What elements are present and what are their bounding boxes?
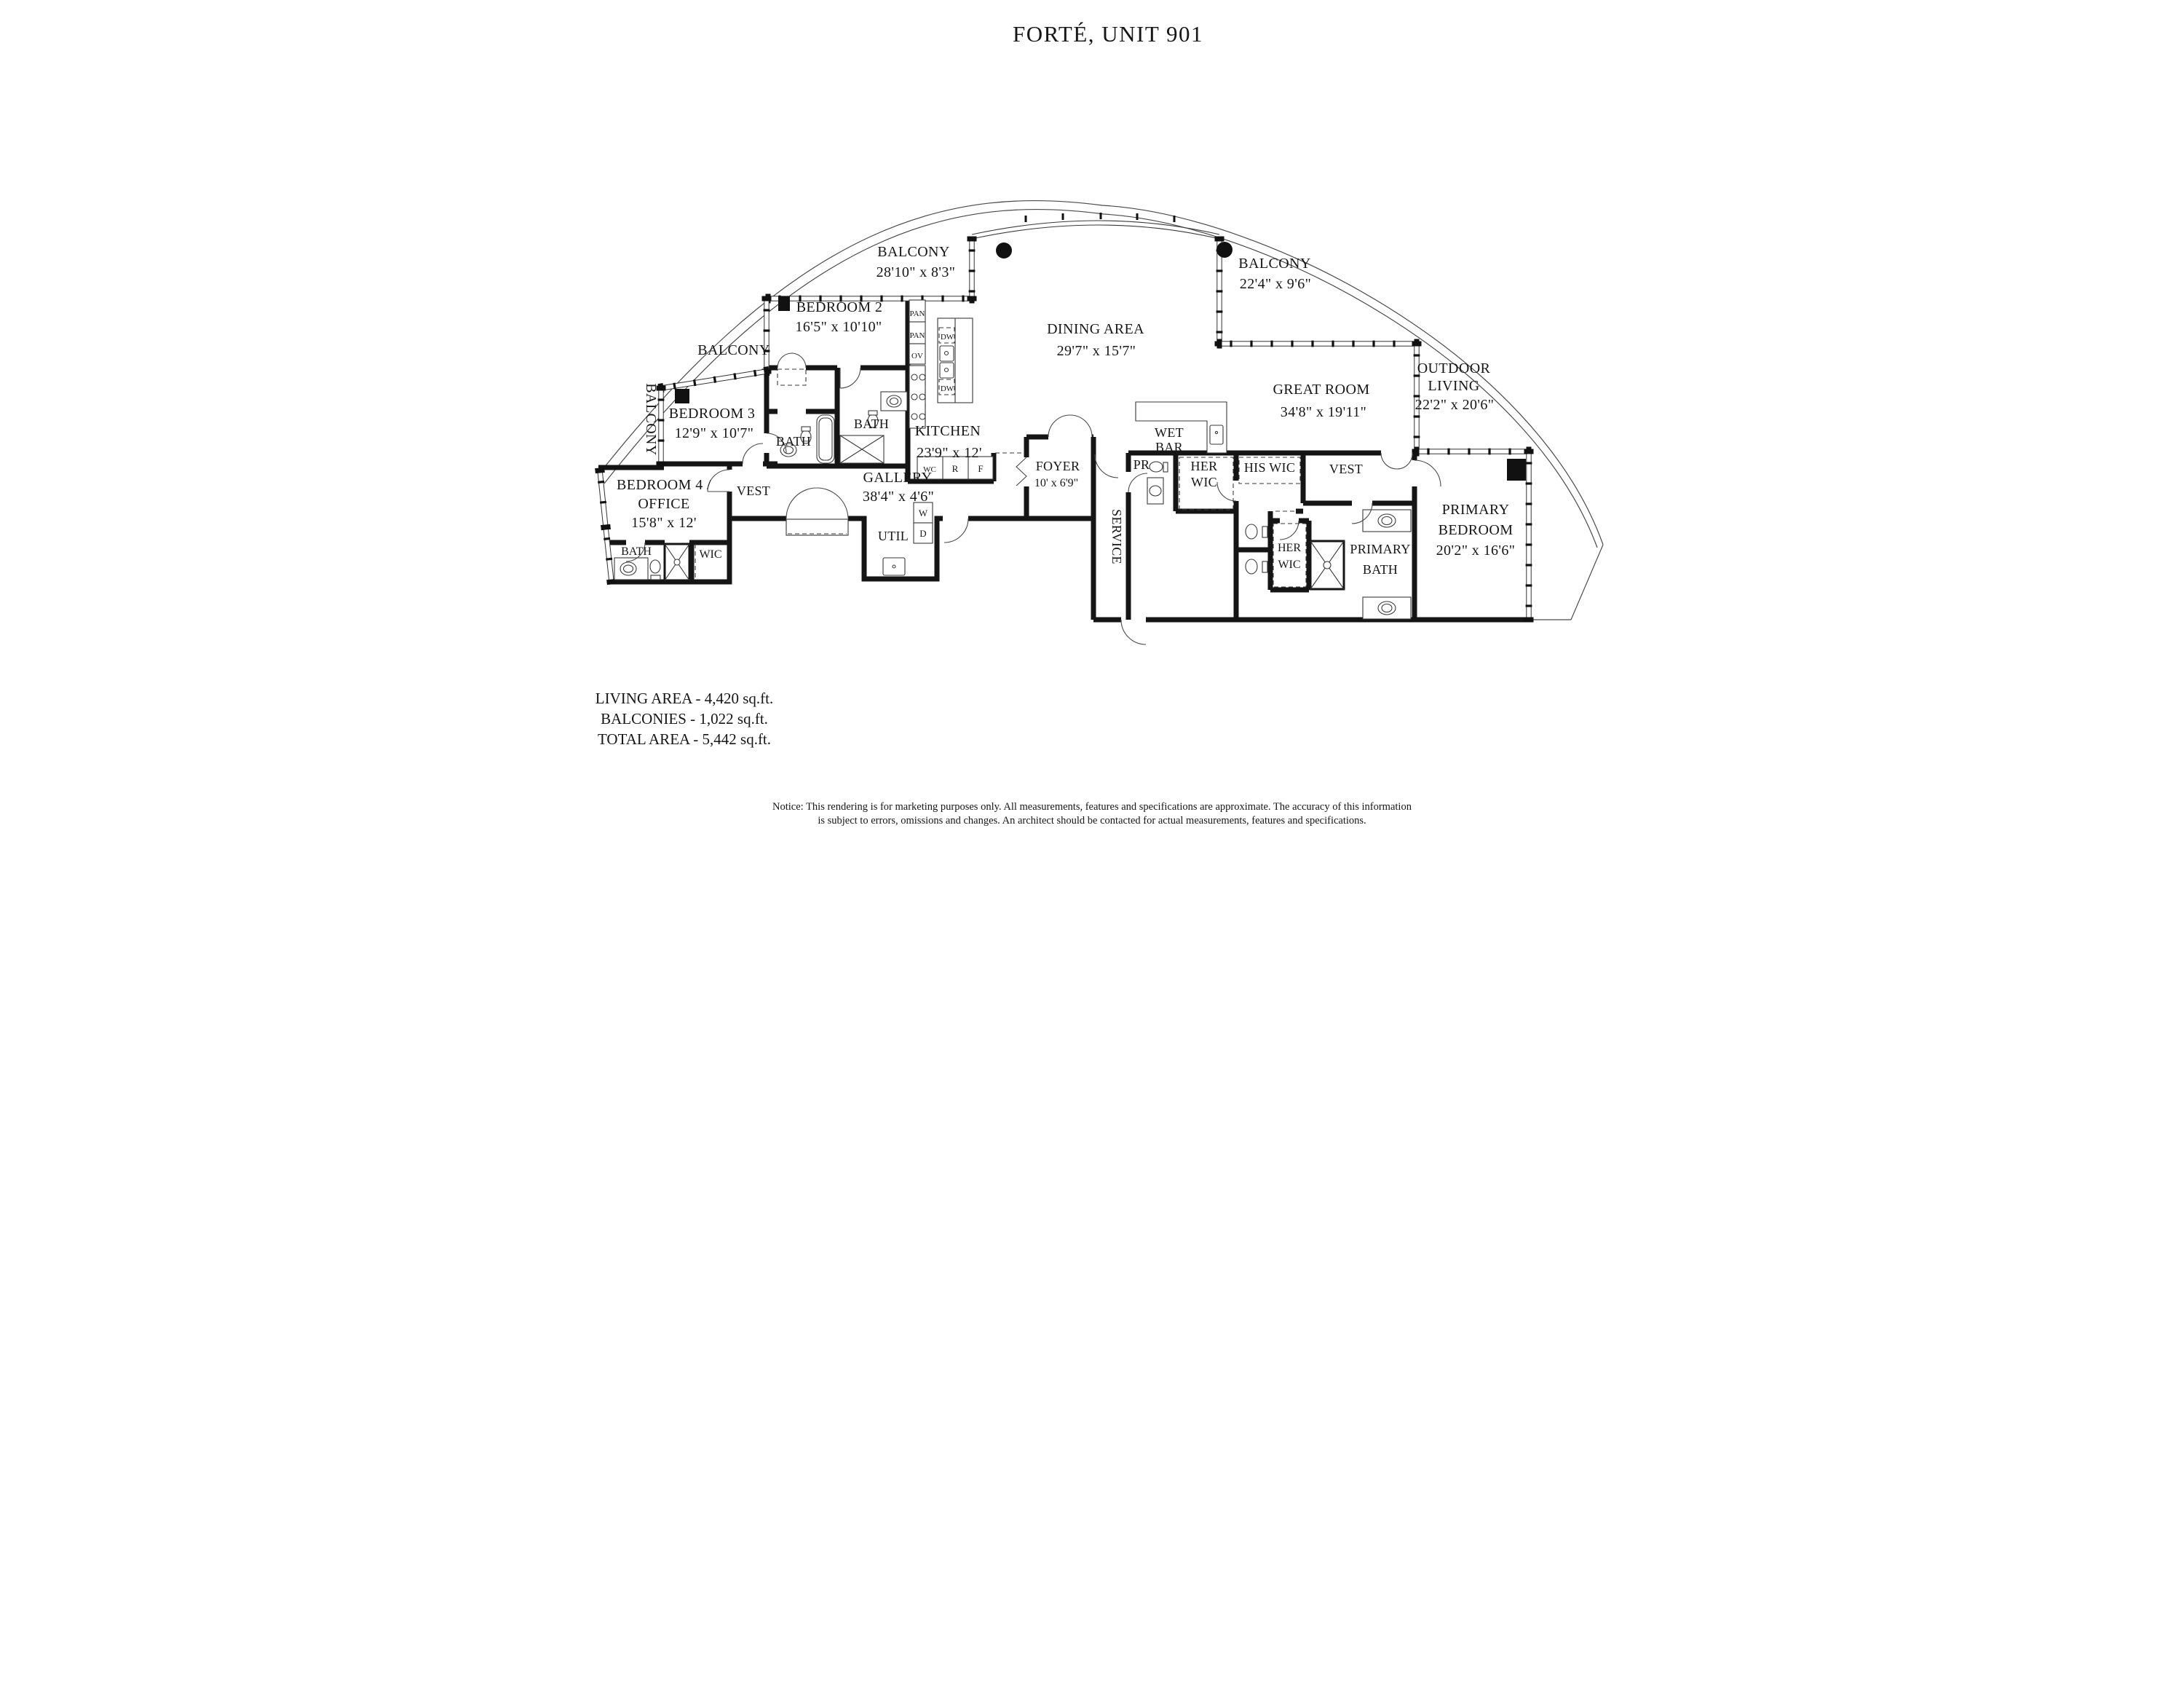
room-dims-balcony-top-right: 22'4" x 9'6" bbox=[1240, 276, 1311, 292]
room-label-balcony-left: BALCONY bbox=[643, 383, 659, 455]
room-label-wetbar-line2: BAR bbox=[1155, 440, 1183, 454]
room-dims-primary-bedroom: 20'2" x 16'6" bbox=[1436, 543, 1516, 559]
room-label-pr: PR bbox=[1133, 457, 1150, 472]
room-label-primary-bedroom-line2: BEDROOM bbox=[1439, 522, 1514, 538]
floorplan-page: FORTÉ, UNIT 901 BALCONY 28'10" x 8'3" BA… bbox=[546, 0, 1638, 844]
room-label-her-wic-line2: WIC bbox=[1191, 475, 1217, 489]
room-label-her-wic-line1: HER bbox=[1191, 459, 1218, 473]
room-label-balcony-top-right: BALCONY bbox=[1238, 256, 1310, 272]
room-label-wic4: WIC bbox=[699, 548, 721, 561]
room-label-bedroom4-line1: BEDROOM 4 / bbox=[617, 477, 711, 493]
room-label-bath2: BATH bbox=[854, 417, 889, 431]
room-dims-great-room: 34'8" x 19'11" bbox=[1281, 404, 1366, 420]
room-label-bedroom3: BEDROOM 3 bbox=[669, 406, 756, 422]
room-label-bedroom4-line2: OFFICE bbox=[638, 496, 689, 512]
room-dims-kitchen: 23'9" x 12' bbox=[917, 445, 982, 461]
room-label-vest-left: VEST bbox=[737, 484, 770, 498]
room-label-kitchen: KITCHEN bbox=[915, 423, 981, 439]
room-label-great-room: GREAT ROOM bbox=[1273, 382, 1369, 398]
room-label-util: UTIL bbox=[878, 529, 909, 543]
room-label-bath3: BATH bbox=[776, 434, 811, 449]
round-column-icon bbox=[996, 242, 1012, 259]
appliance-dishwasher2: DW bbox=[941, 384, 954, 393]
appliance-freezer: F bbox=[978, 463, 983, 474]
stat-balconies: BALCONIES - 1,022 sq.ft. bbox=[601, 710, 768, 727]
room-dims-dining: 29'7" x 15'7" bbox=[1057, 343, 1136, 359]
room-label-outdoor-line1: OUTDOOR bbox=[1417, 360, 1491, 376]
room-label-foyer: FOYER bbox=[1036, 459, 1080, 473]
room-label-wetbar-line1: WET bbox=[1155, 425, 1184, 440]
appliance-refrigerator: R bbox=[952, 463, 959, 474]
room-label-bath4: BATH bbox=[621, 545, 652, 558]
room-label-vest-right: VEST bbox=[1329, 462, 1363, 476]
notice-line1: Notice: This rendering is for marketing … bbox=[772, 801, 1412, 813]
room-dims-bedroom4: 15'8" x 12' bbox=[631, 515, 697, 531]
room-dims-gallery: 38'4" x 4'6" bbox=[863, 489, 934, 505]
labels: FORTÉ, UNIT 901 BALCONY 28'10" x 8'3" BA… bbox=[596, 21, 1516, 827]
room-label-dining: DINING AREA bbox=[1047, 321, 1144, 337]
notice-line2: is subject to errors, omissions and chan… bbox=[818, 815, 1366, 827]
round-column-icon bbox=[1216, 242, 1233, 258]
appliance-dishwasher1: DW bbox=[941, 333, 954, 342]
room-label-primary-bath-line1: PRIMARY bbox=[1350, 542, 1410, 556]
appliance-washer: W bbox=[919, 508, 928, 518]
dashed-lines bbox=[695, 328, 1306, 587]
room-dims-outdoor: 22'2" x 20'6" bbox=[1415, 397, 1495, 413]
appliance-pantry1: PAN bbox=[910, 309, 925, 318]
room-label-gallery: GALLERY bbox=[863, 470, 932, 486]
room-label-her-wic2-line2: WIC bbox=[1278, 559, 1300, 571]
appliance-pantry2: PAN bbox=[910, 331, 925, 340]
stat-living-area: LIVING AREA - 4,420 sq.ft. bbox=[596, 690, 773, 707]
room-label-bedroom2: BEDROOM 2 bbox=[796, 299, 883, 315]
room-label-primary-bedroom-line1: PRIMARY bbox=[1442, 502, 1510, 518]
floor-plan-drawing: FORTÉ, UNIT 901 BALCONY 28'10" x 8'3" BA… bbox=[546, 0, 1638, 844]
appliance-oven: OV bbox=[911, 352, 923, 360]
room-label-primary-bath-line2: BATH bbox=[1363, 562, 1398, 577]
appliance-dryer: D bbox=[919, 528, 926, 539]
room-dims-bedroom3: 12'9" x 10'7" bbox=[675, 425, 754, 441]
room-dims-foyer: 10' x 6'9" bbox=[1034, 477, 1078, 489]
room-label-outdoor-line2: LIVING bbox=[1428, 378, 1479, 394]
room-label-balcony-top-left: BALCONY bbox=[877, 244, 949, 260]
room-label-his-wic: HIS WIC bbox=[1244, 460, 1295, 475]
room-label-balcony-side: BALCONY bbox=[697, 342, 769, 358]
page-title: FORTÉ, UNIT 901 bbox=[1013, 21, 1203, 47]
room-dims-balcony-top-left: 28'10" x 8'3" bbox=[877, 264, 956, 280]
room-dims-bedroom2: 16'5" x 10'10" bbox=[795, 319, 882, 335]
room-label-service: SERVICE bbox=[1109, 509, 1124, 564]
room-label-her-wic2-line1: HER bbox=[1278, 542, 1301, 554]
stat-total-area: TOTAL AREA - 5,442 sq.ft. bbox=[598, 730, 771, 748]
appliance-winecooler: WC bbox=[923, 465, 936, 474]
